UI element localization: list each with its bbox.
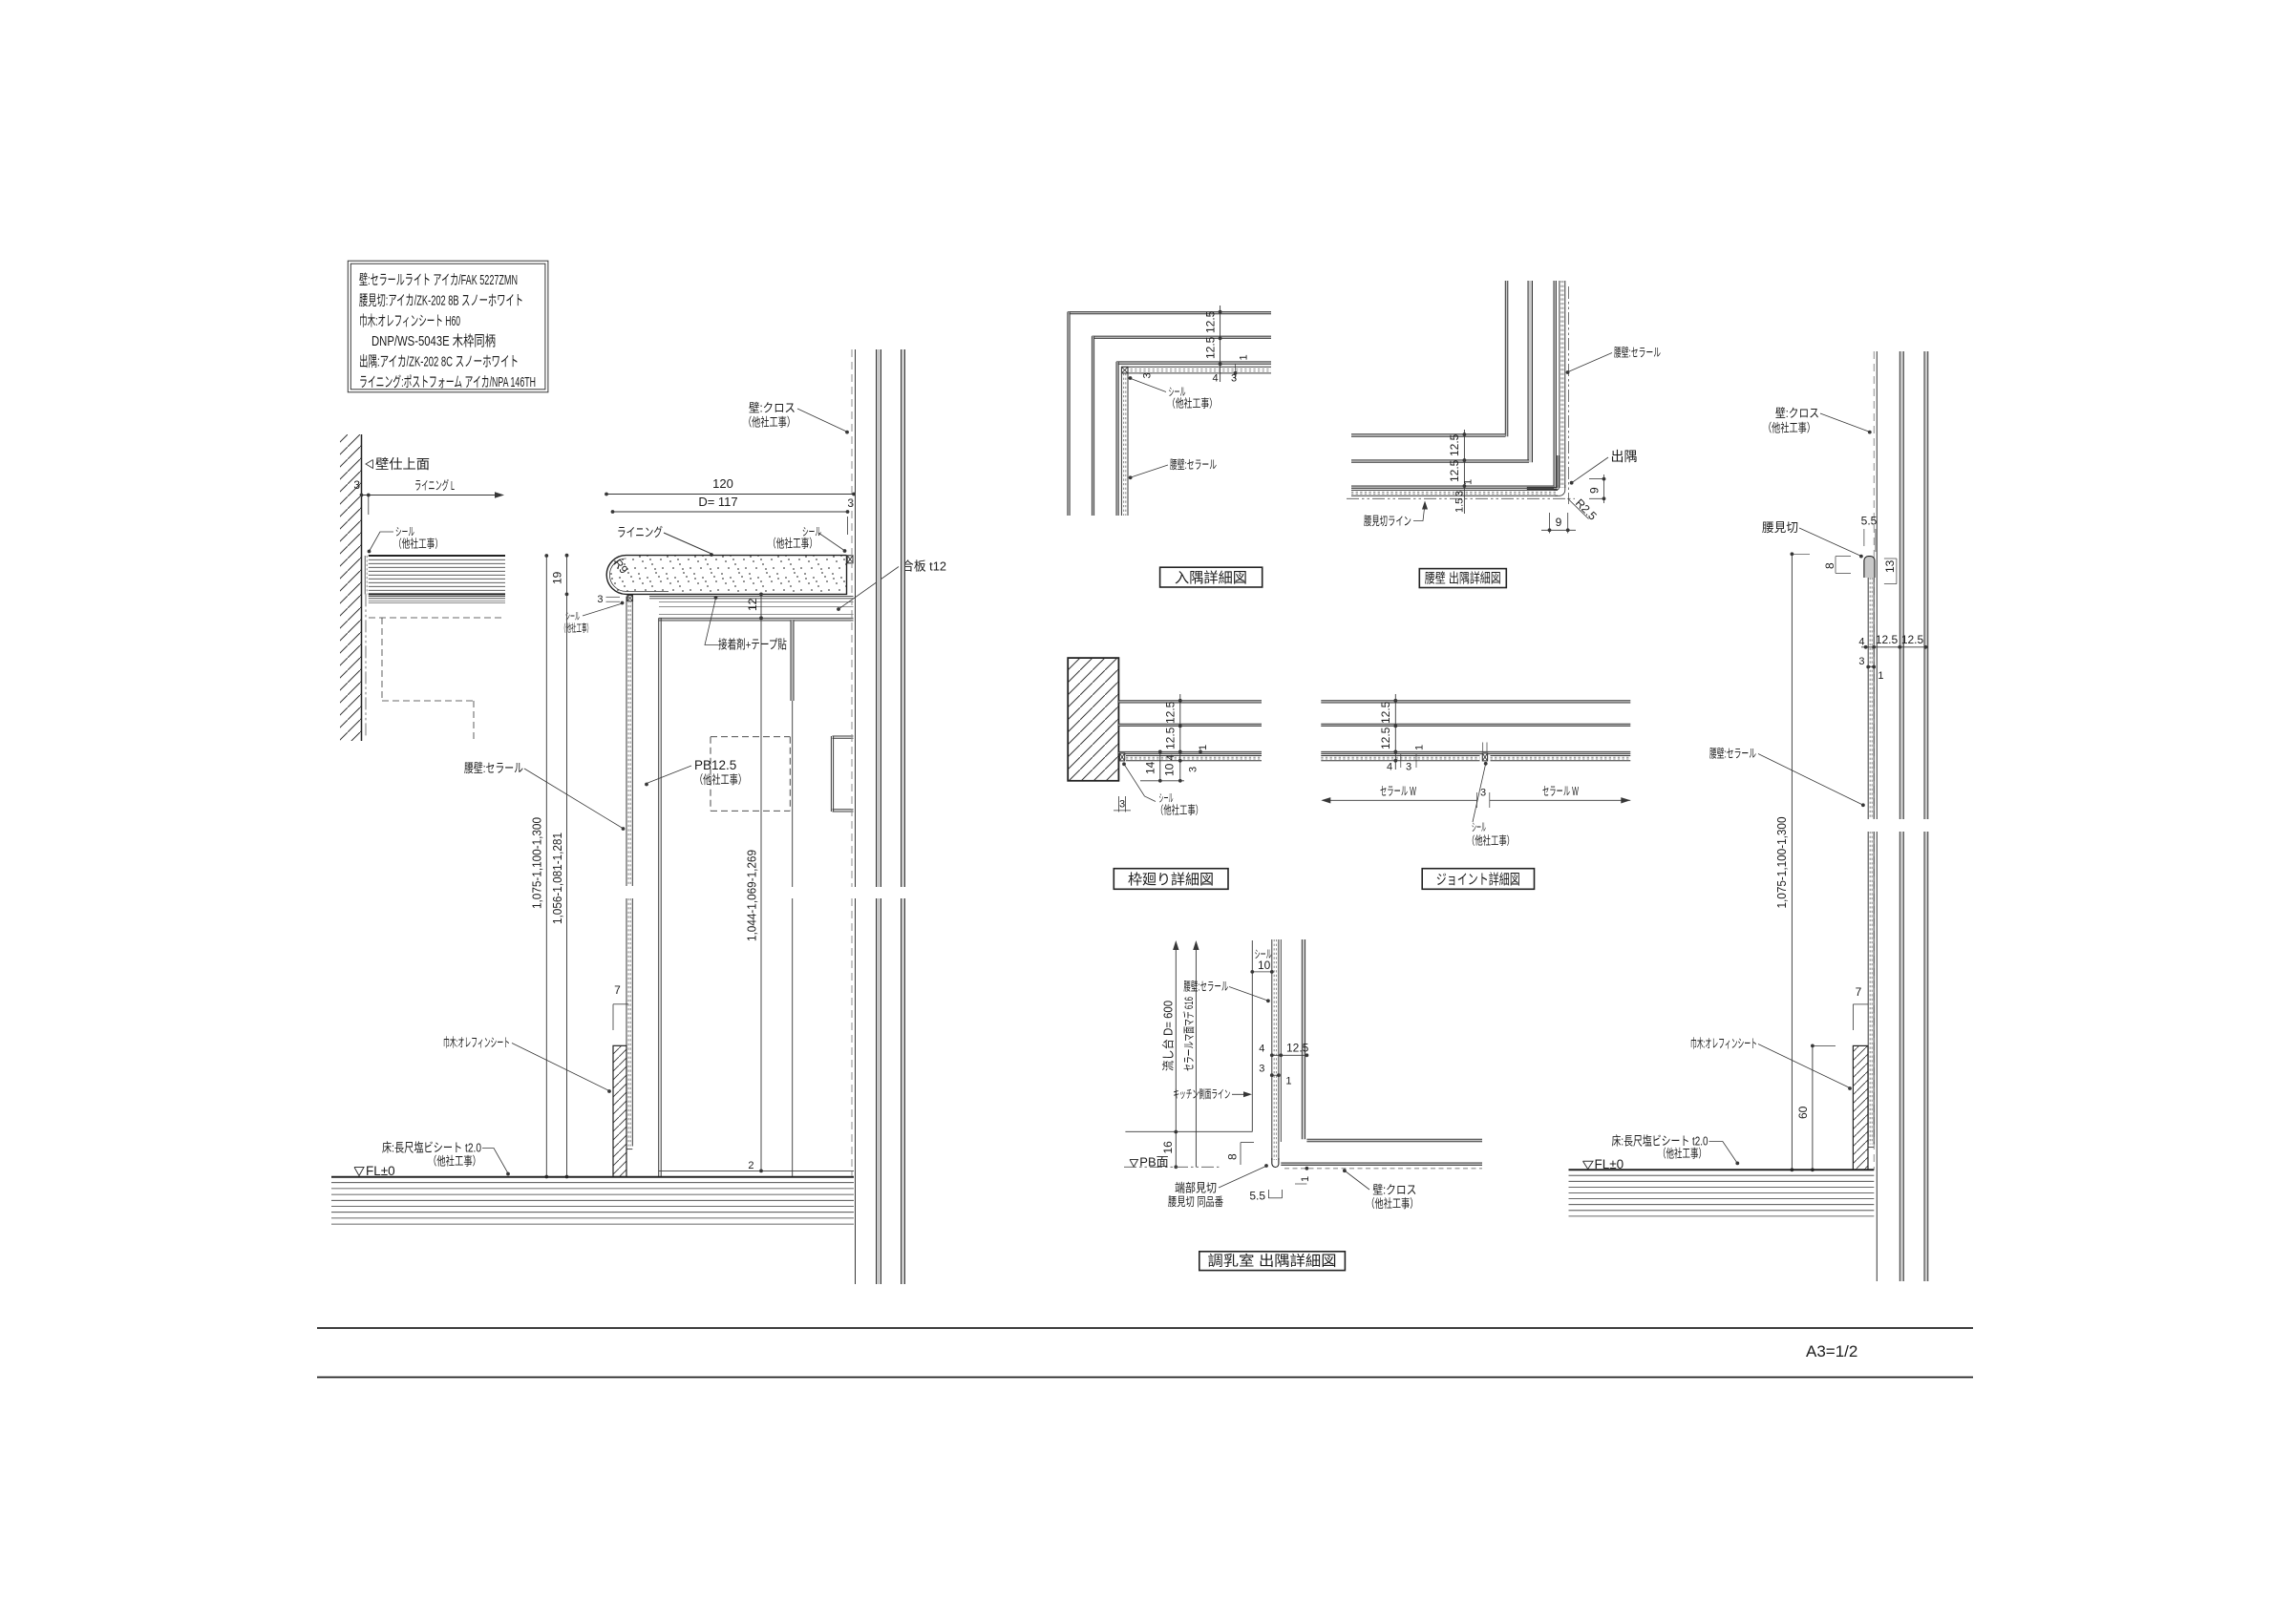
svg-text:ライニング:ポストフォーム アイカ/NPA 146TH: ライニング:ポストフォーム アイカ/NPA 146TH bbox=[359, 374, 536, 390]
svg-text:腰壁:セラール: 腰壁:セラール bbox=[1709, 747, 1756, 761]
svg-text:12.5: 12.5 bbox=[1379, 701, 1392, 724]
svg-text:調乳室 出隅詳細図: 調乳室 出隅詳細図 bbox=[1208, 1254, 1337, 1270]
svg-text:セラール W: セラール W bbox=[1542, 785, 1579, 798]
svg-text:枠廻り詳細図: 枠廻り詳細図 bbox=[1128, 872, 1214, 888]
svg-text:セラール W: セラール W bbox=[1380, 785, 1416, 798]
svg-text:FL±0: FL±0 bbox=[366, 1164, 395, 1178]
svg-text:壁:クロス: 壁:クロス bbox=[1372, 1183, 1416, 1197]
svg-text:120: 120 bbox=[712, 476, 733, 491]
svg-text:巾木:オレフィンシート: 巾木:オレフィンシート bbox=[1690, 1037, 1757, 1051]
svg-text:4: 4 bbox=[1387, 762, 1392, 773]
svg-text:PB面: PB面 bbox=[1139, 1155, 1168, 1170]
svg-text:シール: シール bbox=[565, 611, 580, 622]
svg-text:9: 9 bbox=[1556, 516, 1562, 529]
svg-text:入隅詳細図: 入隅詳細図 bbox=[1175, 570, 1247, 586]
svg-text:壁:クロス: 壁:クロス bbox=[749, 401, 796, 415]
svg-text:（他社工事）: （他社工事） bbox=[1167, 396, 1218, 411]
svg-text:床:長尺塩ビシート t2.0: 床:長尺塩ビシート t2.0 bbox=[382, 1141, 481, 1155]
svg-text:4: 4 bbox=[1212, 373, 1218, 385]
svg-text:1: 1 bbox=[1300, 1176, 1311, 1182]
svg-text:（他社工事）: （他社工事） bbox=[694, 772, 747, 787]
svg-text:10: 10 bbox=[1258, 959, 1271, 972]
svg-text:4: 4 bbox=[1858, 637, 1864, 648]
svg-text:腰壁 出隅詳細図: 腰壁 出隅詳細図 bbox=[1425, 571, 1501, 586]
svg-text:腰見切: 腰見切 bbox=[1762, 520, 1798, 535]
svg-text:1,056-1,081-1,281: 1,056-1,081-1,281 bbox=[550, 833, 564, 924]
svg-text:1: 1 bbox=[1239, 354, 1250, 360]
svg-text:（他社工事）: （他社工事） bbox=[1366, 1196, 1418, 1211]
svg-text:1: 1 bbox=[1878, 670, 1883, 682]
svg-text:3: 3 bbox=[1858, 656, 1864, 667]
svg-text:（他社工事）: （他社工事） bbox=[428, 1154, 481, 1169]
svg-text:8: 8 bbox=[1823, 562, 1836, 569]
svg-text:DNP/WS-5043E 木枠同柄: DNP/WS-5043E 木枠同柄 bbox=[371, 333, 496, 349]
svg-text:キッチン側面ライン: キッチン側面ライン bbox=[1173, 1087, 1230, 1101]
svg-text:1,075-1,100-1,300: 1,075-1,100-1,300 bbox=[1774, 817, 1789, 909]
svg-text:1: 1 bbox=[1198, 745, 1209, 750]
svg-text:16: 16 bbox=[1161, 1141, 1175, 1154]
svg-text:A3=1/2: A3=1/2 bbox=[1806, 1342, 1857, 1360]
svg-text:端部見切: 端部見切 bbox=[1175, 1181, 1217, 1195]
svg-text:3: 3 bbox=[1142, 372, 1154, 378]
svg-text:1,075-1,100-1,300: 1,075-1,100-1,300 bbox=[530, 817, 544, 909]
svg-text:12.5: 12.5 bbox=[1448, 433, 1461, 456]
svg-text:接着剤+テープ貼: 接着剤+テープ貼 bbox=[718, 638, 787, 652]
svg-text:1: 1 bbox=[1285, 1076, 1291, 1087]
svg-text:腰壁:セラール: 腰壁:セラール bbox=[464, 761, 523, 775]
svg-text:3: 3 bbox=[1454, 491, 1466, 496]
svg-text:14: 14 bbox=[1144, 761, 1157, 774]
svg-text:10: 10 bbox=[1163, 763, 1177, 776]
svg-text:5.5: 5.5 bbox=[1861, 515, 1878, 528]
svg-text:1,044-1,069-1,269: 1,044-1,069-1,269 bbox=[745, 850, 759, 941]
svg-text:ライニング L: ライニング L bbox=[414, 478, 455, 493]
svg-text:3: 3 bbox=[1231, 373, 1237, 385]
svg-text:12.5: 12.5 bbox=[1204, 336, 1218, 359]
svg-text:9: 9 bbox=[1588, 487, 1602, 494]
svg-text:4: 4 bbox=[1259, 1044, 1264, 1055]
svg-text:（他社工事）: （他社工事） bbox=[1763, 421, 1815, 435]
svg-text:3: 3 bbox=[847, 496, 854, 510]
svg-text:（他社工事）: （他社工事） bbox=[561, 622, 592, 635]
svg-text:セラールマ面マデ 616: セラールマ面マデ 616 bbox=[1181, 997, 1196, 1071]
svg-text:ジョイント詳細図: ジョイント詳細図 bbox=[1436, 872, 1520, 888]
svg-text:3: 3 bbox=[353, 478, 360, 492]
svg-text:（他社工事）: （他社工事） bbox=[1156, 803, 1203, 817]
svg-text:3: 3 bbox=[1259, 1064, 1264, 1075]
svg-text:3: 3 bbox=[1188, 767, 1199, 772]
svg-text:合板 t12: 合板 t12 bbox=[902, 559, 946, 574]
svg-text:12: 12 bbox=[746, 598, 759, 611]
svg-text:12.5: 12.5 bbox=[1876, 633, 1899, 646]
svg-text:D= 117: D= 117 bbox=[698, 495, 737, 509]
svg-text:出隅:アイカ/ZK-202 8C スノーホワイト: 出隅:アイカ/ZK-202 8C スノーホワイト bbox=[359, 354, 519, 370]
svg-text:シール: シール bbox=[1472, 821, 1486, 834]
svg-text:12.5: 12.5 bbox=[1286, 1042, 1309, 1055]
svg-text:（他社工事）: （他社工事） bbox=[1658, 1147, 1707, 1161]
svg-text:1: 1 bbox=[1463, 479, 1475, 485]
svg-text:PB12.5: PB12.5 bbox=[694, 758, 736, 772]
svg-text:腰見切ライン: 腰見切ライン bbox=[1364, 515, 1411, 528]
svg-text:壁:セラールライト アイカ/FAK 5227ZMN: 壁:セラールライト アイカ/FAK 5227ZMN bbox=[359, 272, 518, 288]
svg-text:（他社工事）: （他社工事） bbox=[1467, 833, 1515, 848]
svg-text:巾木:オレフィンシート: 巾木:オレフィンシート bbox=[443, 1036, 510, 1050]
svg-text:12.5: 12.5 bbox=[1901, 633, 1924, 646]
svg-text:出隅: 出隅 bbox=[1611, 449, 1638, 464]
svg-text:60: 60 bbox=[1796, 1106, 1810, 1119]
svg-text:（他社工事）: （他社工事） bbox=[393, 537, 443, 551]
svg-text:（他社工事）: （他社工事） bbox=[743, 415, 796, 430]
svg-text:腰見切:アイカ/ZK-202 8B スノーホワイト: 腰見切:アイカ/ZK-202 8B スノーホワイト bbox=[359, 292, 523, 308]
svg-text:腰壁:セラール: 腰壁:セラール bbox=[1614, 346, 1661, 360]
svg-text:腰壁:セラール: 腰壁:セラール bbox=[1170, 457, 1217, 472]
svg-text:腰壁:セラール: 腰壁:セラール bbox=[1183, 980, 1228, 994]
svg-text:3: 3 bbox=[1480, 788, 1486, 799]
svg-text:腰見切 同品番: 腰見切 同品番 bbox=[1168, 1195, 1223, 1209]
svg-text:壁:クロス: 壁:クロス bbox=[1775, 406, 1819, 420]
svg-text:床:長尺塩ビシート t2.0: 床:長尺塩ビシート t2.0 bbox=[1612, 1134, 1708, 1149]
svg-text:12.5: 12.5 bbox=[1164, 701, 1178, 724]
svg-text:1.5: 1.5 bbox=[1454, 498, 1466, 513]
svg-text:流し台 D= 600: 流し台 D= 600 bbox=[1161, 1001, 1176, 1071]
svg-text:（他社工事）: （他社工事） bbox=[768, 537, 817, 551]
svg-text:19: 19 bbox=[551, 571, 564, 584]
svg-text:7: 7 bbox=[1856, 985, 1862, 999]
svg-text:2: 2 bbox=[748, 1160, 753, 1171]
svg-text:巾木:オレフィンシート H60: 巾木:オレフィンシート H60 bbox=[359, 313, 460, 329]
svg-text:3: 3 bbox=[1119, 799, 1125, 811]
svg-text:12.5: 12.5 bbox=[1448, 459, 1461, 482]
svg-text:12.5: 12.5 bbox=[1164, 727, 1178, 749]
svg-text:3: 3 bbox=[1406, 762, 1411, 773]
svg-text:4: 4 bbox=[1165, 754, 1177, 760]
svg-text:ライニング: ライニング bbox=[617, 525, 663, 539]
svg-text:1: 1 bbox=[1414, 745, 1426, 750]
svg-text:12.5: 12.5 bbox=[1379, 727, 1392, 749]
svg-text:13: 13 bbox=[1883, 559, 1897, 573]
svg-text:7: 7 bbox=[614, 983, 621, 997]
svg-text:3: 3 bbox=[597, 594, 603, 605]
svg-text:壁仕上面: 壁仕上面 bbox=[375, 456, 430, 472]
svg-text:8: 8 bbox=[1226, 1153, 1240, 1160]
svg-text:5.5: 5.5 bbox=[1249, 1190, 1265, 1203]
svg-text:12.5: 12.5 bbox=[1204, 310, 1218, 333]
